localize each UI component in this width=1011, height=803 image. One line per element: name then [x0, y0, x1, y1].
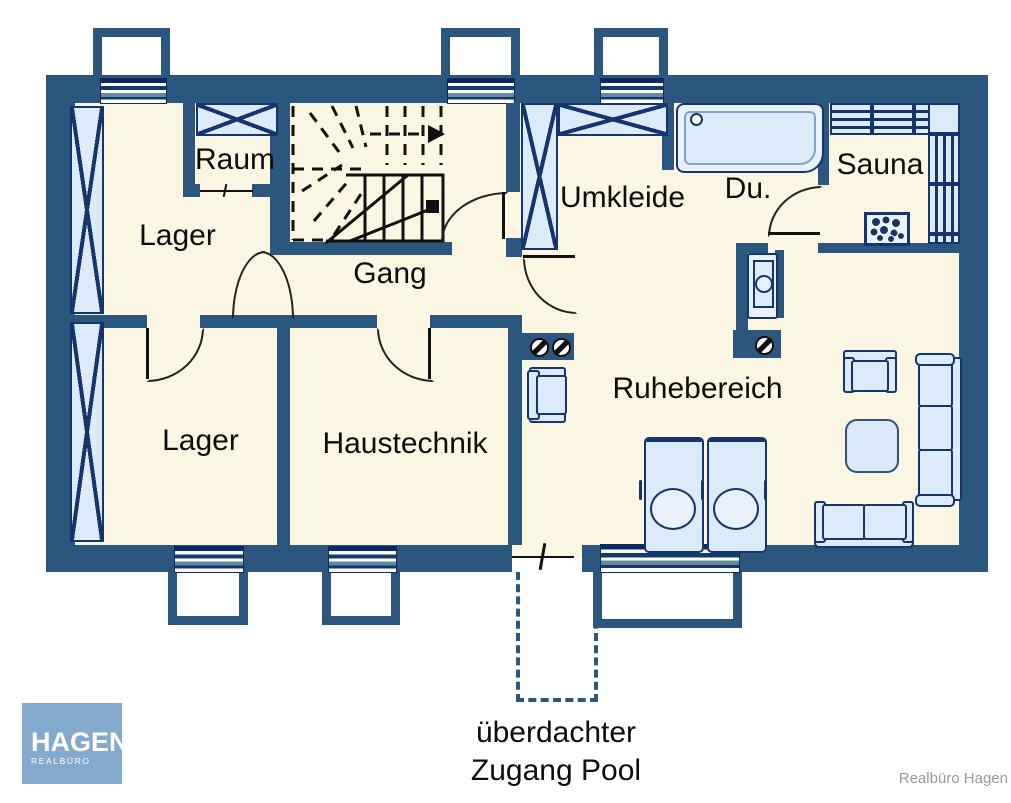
shelf-icon [70, 106, 104, 314]
wall-segment [506, 238, 522, 257]
wall-segment [508, 315, 522, 545]
room-label-haustechnik: Haustechnik [310, 427, 500, 461]
room-label-raum: Raum [183, 143, 287, 177]
hagen-logo: HAGEN REALBÜRO [22, 703, 122, 784]
wall-segment [736, 545, 988, 572]
door-symbol [200, 190, 253, 192]
door-leaf [428, 328, 431, 379]
logo-title: HAGEN [31, 729, 122, 756]
stove-icon [747, 253, 778, 319]
armchair-icon [843, 350, 897, 395]
sauna-bench-icon [928, 103, 960, 134]
room-label-sauna: Sauna [820, 148, 940, 182]
room-label-gang: Gang [335, 257, 445, 291]
wall-segment [277, 315, 290, 545]
door-leaf [523, 255, 575, 258]
floor-plan: Raum Lager Gang Umkleide Du. Sauna Lager… [0, 0, 1011, 803]
armchair-icon [527, 367, 567, 419]
wall-segment [959, 75, 988, 572]
watermark-text: Realbüro Hagen [858, 770, 1008, 787]
wardrobe-icon [196, 103, 278, 136]
light-well [593, 570, 742, 628]
window-symbol [447, 78, 515, 104]
shower-tray-icon [676, 103, 824, 173]
window-symbol [328, 546, 397, 573]
wall-segment [506, 103, 520, 192]
chimney-flue-icon [552, 338, 571, 357]
wall-segment [46, 75, 988, 103]
chimney-flue-icon [530, 338, 549, 357]
room-label-lager-top: Lager [120, 219, 235, 253]
door-leaf [502, 192, 505, 239]
wall-segment [582, 545, 602, 572]
room-label-dusche: Du. [713, 172, 783, 206]
table-icon [845, 419, 899, 473]
wardrobe-icon [521, 103, 558, 250]
window-symbol [100, 78, 167, 104]
sofa-icon [814, 501, 914, 547]
sauna-heater-icon [864, 212, 910, 246]
window-symbol [174, 546, 244, 573]
shelf-icon [70, 322, 104, 542]
wall-segment [183, 184, 200, 197]
chimney-flue-icon [755, 336, 774, 355]
drain-icon [690, 113, 703, 126]
pool-access-outline [516, 572, 598, 702]
wall-segment [290, 315, 377, 328]
light-well [168, 570, 248, 625]
stairs-icon [290, 103, 450, 244]
wardrobe-icon [558, 103, 668, 136]
sofa-icon [918, 353, 961, 503]
light-well [322, 570, 400, 625]
caption-line-2: Zugang Pool [400, 752, 712, 790]
room-label-ruhebereich: Ruhebereich [600, 372, 795, 406]
logo-subtitle: REALBÜRO [31, 756, 122, 766]
wall-segment [46, 545, 512, 572]
lounger-icon [707, 437, 767, 553]
room-label-umkleide: Umkleide [550, 181, 695, 215]
window-symbol [600, 78, 664, 104]
door-leaf [146, 328, 149, 379]
door-leaf [768, 232, 820, 235]
room-label-lager-bottom: Lager [143, 424, 258, 458]
caption-line-1: überdachter [400, 714, 712, 752]
wall-segment [252, 184, 272, 197]
lounger-icon [644, 437, 704, 553]
pool-access-caption: überdachter Zugang Pool [400, 714, 712, 790]
